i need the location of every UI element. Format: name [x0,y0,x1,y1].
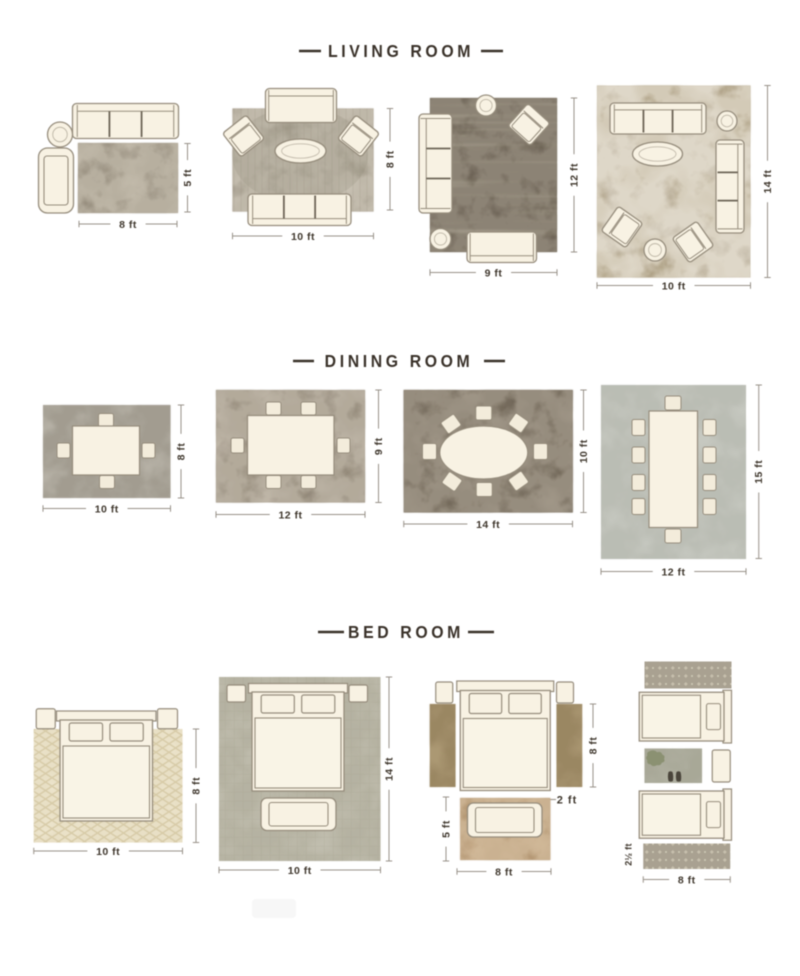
svg-text:14 ft: 14 ft [476,519,500,531]
svg-text:12 ft: 12 ft [661,566,685,578]
svg-text:8 ft: 8 ft [119,219,137,231]
svg-text:8 ft: 8 ft [587,737,599,755]
svg-text:5 ft: 5 ft [182,169,194,187]
svg-text:10 ft: 10 ft [95,503,119,515]
svg-text:10 ft: 10 ft [578,439,590,463]
svg-text:8 ft: 8 ft [190,777,202,795]
svg-text:5 ft: 5 ft [440,820,452,838]
svg-text:14 ft: 14 ft [383,757,395,781]
svg-text:LIVING ROOM: LIVING ROOM [328,41,474,61]
svg-text:10 ft: 10 ft [662,280,686,292]
svg-text:2½ ft: 2½ ft [624,843,634,866]
svg-text:9 ft: 9 ft [485,267,503,279]
svg-text:8 ft: 8 ft [384,150,396,168]
svg-text:15 ft: 15 ft [753,460,765,484]
svg-text:14 ft: 14 ft [762,169,774,193]
svg-text:12 ft: 12 ft [568,163,580,187]
svg-text:8 ft: 8 ft [678,874,696,886]
svg-text:10 ft: 10 ft [96,846,120,858]
svg-text:DINING ROOM: DINING ROOM [325,351,474,371]
svg-text:2 ft: 2 ft [557,795,578,807]
svg-text:12 ft: 12 ft [278,509,302,521]
svg-text:9 ft: 9 ft [373,437,385,455]
svg-text:10 ft: 10 ft [291,231,315,243]
svg-text:BED ROOM: BED ROOM [348,622,464,642]
svg-text:8 ft: 8 ft [495,866,513,878]
svg-text:10 ft: 10 ft [288,865,312,877]
svg-text:8 ft: 8 ft [175,443,187,461]
